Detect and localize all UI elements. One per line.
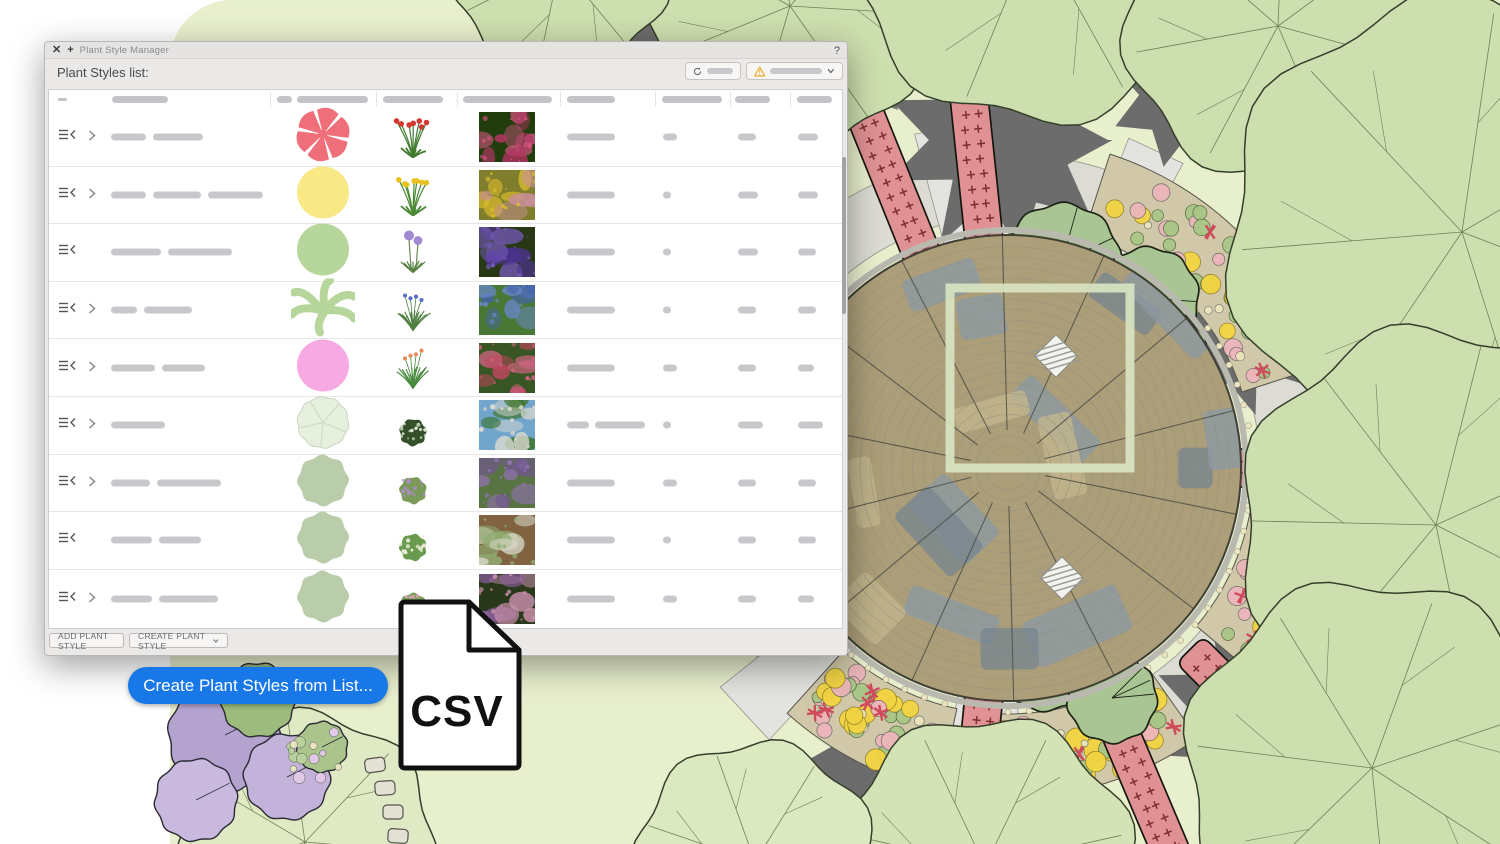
- name-placeholder: [157, 479, 221, 486]
- dropdown-value-placeholder: [770, 68, 822, 74]
- table-row[interactable]: [49, 109, 842, 167]
- stat-placeholder: [567, 307, 615, 314]
- stat-placeholder: [738, 537, 756, 544]
- window-title: Plant Style Manager: [80, 45, 169, 56]
- table-row[interactable]: [49, 224, 842, 282]
- stat-placeholder: [663, 537, 671, 544]
- stat-placeholder: [663, 307, 671, 314]
- stat-placeholder: [738, 422, 763, 429]
- stat-placeholder: [798, 307, 816, 314]
- plant-symbol-palm[interactable]: [291, 279, 355, 342]
- vertical-scrollbar-thumb[interactable]: [842, 157, 846, 314]
- stat-placeholder: [798, 249, 816, 256]
- name-placeholder: [159, 595, 218, 602]
- stat-placeholder: [738, 191, 758, 198]
- refresh-icon: [693, 66, 702, 77]
- table-row[interactable]: [49, 512, 842, 570]
- table-row[interactable]: [49, 167, 842, 225]
- column-divider: [376, 92, 377, 107]
- create-plant-style-label: CREATE PLANT STYLE: [138, 631, 209, 651]
- name-placeholder: [111, 134, 146, 141]
- name-placeholder: [168, 249, 232, 256]
- plant-render-blue-grass[interactable]: [390, 283, 436, 338]
- plant-render-yellow-yarrow[interactable]: [390, 167, 436, 222]
- stat-placeholder: [567, 364, 615, 371]
- stat-placeholder: [798, 537, 816, 544]
- header-placeholder: [277, 96, 292, 103]
- window-titlebar[interactable]: ✕ + Plant Style Manager: [45, 42, 847, 59]
- drag-handle-icon[interactable]: [59, 186, 76, 204]
- white-blossom-photo[interactable]: [479, 400, 535, 450]
- yellow-field-photo[interactable]: [479, 170, 535, 220]
- stat-placeholder: [567, 191, 615, 198]
- header-placeholder: [58, 98, 67, 101]
- expand-chevron-icon[interactable]: [88, 590, 96, 608]
- add-plant-style-label: ADD PLANT STYLE: [58, 631, 115, 651]
- column-divider: [270, 92, 271, 107]
- name-placeholder: [153, 191, 201, 198]
- drag-handle-icon[interactable]: [59, 128, 76, 146]
- plant-render-pink-grass[interactable]: [390, 340, 436, 395]
- table-row[interactable]: [49, 282, 842, 340]
- table-rows: [49, 109, 842, 628]
- stat-placeholder: [738, 364, 756, 371]
- table-row[interactable]: [49, 455, 842, 513]
- plant-symbol-circle[interactable]: [291, 336, 355, 399]
- plant-render-dark-shrub[interactable]: [390, 398, 436, 453]
- name-placeholder: [159, 537, 201, 544]
- warning-icon: [754, 66, 765, 77]
- stat-placeholder: [738, 134, 756, 141]
- refresh-button[interactable]: [685, 62, 741, 80]
- refresh-label-placeholder: [707, 68, 733, 74]
- plant-styles-list-label: Plant Styles list:: [57, 65, 149, 80]
- chevron-down-icon: [827, 68, 835, 74]
- add-plant-style-button[interactable]: ADD PLANT STYLE: [49, 633, 124, 648]
- stat-placeholder: [798, 422, 823, 429]
- header-placeholder: [797, 96, 832, 103]
- name-placeholder: [111, 422, 165, 429]
- warning-dropdown[interactable]: [746, 62, 843, 80]
- plant-render-lavender-bush[interactable]: [390, 455, 436, 510]
- create-plant-styles-from-list-button[interactable]: Create Plant Styles from List...: [128, 667, 388, 704]
- table-header: [49, 90, 842, 110]
- stat-placeholder: [663, 134, 677, 141]
- stat-placeholder: [567, 134, 615, 141]
- name-placeholder: [153, 134, 203, 141]
- header-placeholder: [735, 96, 770, 103]
- drag-handle-icon[interactable]: [59, 531, 76, 549]
- stat-placeholder: [798, 595, 814, 602]
- stat-placeholder: [567, 537, 615, 544]
- plant-render-white-shrub[interactable]: [390, 513, 436, 568]
- expand-chevron-icon[interactable]: [88, 128, 96, 146]
- name-placeholder: [111, 307, 137, 314]
- drag-handle-icon[interactable]: [59, 416, 76, 434]
- close-icon[interactable]: ✕: [49, 43, 64, 57]
- pink-flowers-photo[interactable]: [479, 112, 535, 162]
- drag-handle-icon[interactable]: [59, 301, 76, 319]
- header-placeholder: [297, 96, 368, 103]
- csv-label: CSV: [410, 687, 503, 736]
- stat-placeholder: [798, 479, 816, 486]
- plant-symbol-asterisk[interactable]: [291, 106, 355, 169]
- stat-placeholder: [798, 191, 818, 198]
- name-placeholder: [111, 364, 155, 371]
- name-placeholder: [162, 364, 205, 371]
- plant-symbol-cloud[interactable]: [291, 451, 355, 514]
- column-divider: [730, 92, 731, 107]
- chevron-down-icon: [213, 638, 219, 644]
- plant-symbol-tree[interactable]: [291, 394, 355, 457]
- name-placeholder: [144, 307, 192, 314]
- column-divider: [457, 92, 458, 107]
- purple-flowers-photo[interactable]: [479, 227, 535, 277]
- header-placeholder: [463, 96, 552, 103]
- expand-chevron-icon[interactable]: [88, 359, 96, 377]
- stat-placeholder: [663, 249, 671, 256]
- stat-placeholder: [798, 364, 814, 371]
- name-placeholder: [208, 191, 263, 198]
- csv-file-icon: CSV: [393, 598, 525, 774]
- stat-placeholder: [567, 249, 615, 256]
- stat-placeholder: [738, 479, 756, 486]
- stat-placeholder: [595, 422, 645, 429]
- purple-field-photo[interactable]: [479, 458, 535, 508]
- stat-placeholder: [663, 191, 671, 198]
- blue-globes-photo[interactable]: [479, 285, 535, 335]
- column-divider: [790, 92, 791, 107]
- name-placeholder: [111, 595, 152, 602]
- stat-placeholder: [567, 595, 615, 602]
- table-row[interactable]: [49, 339, 842, 397]
- drag-handle-icon[interactable]: [59, 243, 76, 261]
- stat-placeholder: [663, 422, 671, 429]
- header-placeholder: [112, 96, 168, 103]
- expand-chevron-icon[interactable]: [88, 301, 96, 319]
- stat-placeholder: [663, 479, 677, 486]
- header-placeholder: [662, 96, 722, 103]
- table-row[interactable]: [49, 397, 842, 455]
- screenshot-stage: ✕ + Plant Style Manager ? Plant Styles l…: [0, 0, 1500, 844]
- column-divider: [560, 92, 561, 107]
- name-placeholder: [111, 191, 146, 198]
- stat-placeholder: [738, 595, 756, 602]
- stat-placeholder: [663, 364, 677, 371]
- header-placeholder: [567, 96, 615, 103]
- expand-chevron-icon[interactable]: [88, 186, 96, 204]
- pink-cluster-photo[interactable]: [479, 343, 535, 393]
- expand-chevron-icon[interactable]: [88, 416, 96, 434]
- name-placeholder: [111, 537, 152, 544]
- plant-styles-table: [48, 89, 843, 629]
- name-placeholder: [111, 479, 150, 486]
- plant-symbol-cloud[interactable]: [291, 509, 355, 572]
- expand-chevron-icon[interactable]: [88, 474, 96, 492]
- plant-symbol-circle[interactable]: [291, 163, 355, 226]
- drag-handle-icon[interactable]: [59, 474, 76, 492]
- stat-placeholder: [738, 249, 758, 256]
- plant-render-purple-allium[interactable]: [390, 225, 436, 280]
- column-divider: [655, 92, 656, 107]
- name-placeholder: [111, 249, 161, 256]
- add-window-icon[interactable]: +: [64, 43, 76, 57]
- stat-placeholder: [798, 134, 818, 141]
- help-icon[interactable]: ?: [834, 45, 840, 57]
- drag-handle-icon[interactable]: [59, 590, 76, 608]
- plant-symbol-cloud[interactable]: [291, 567, 355, 630]
- shrub-dirt-photo[interactable]: [479, 515, 535, 565]
- plant-symbol-circle[interactable]: [291, 221, 355, 284]
- stat-placeholder: [567, 479, 615, 486]
- plant-render-red-poppy[interactable]: [390, 110, 436, 165]
- create-plant-style-button[interactable]: CREATE PLANT STYLE: [129, 633, 228, 648]
- plant-style-manager-window: ✕ + Plant Style Manager ? Plant Styles l…: [44, 41, 848, 656]
- stat-placeholder: [567, 422, 589, 429]
- drag-handle-icon[interactable]: [59, 359, 76, 377]
- stat-placeholder: [738, 307, 756, 314]
- header-placeholder: [383, 96, 443, 103]
- stat-placeholder: [663, 595, 677, 602]
